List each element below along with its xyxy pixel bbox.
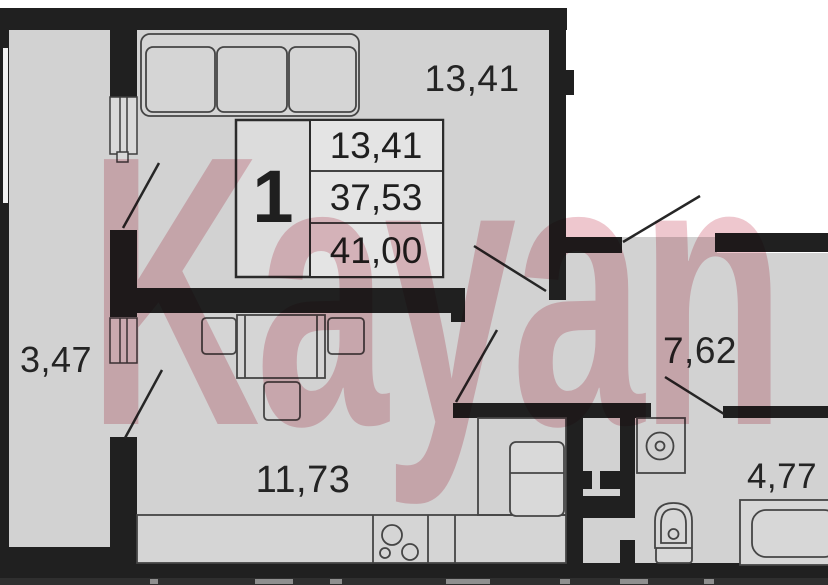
sofa <box>141 34 359 116</box>
strip-dash <box>150 579 158 584</box>
toilet-tank <box>656 547 692 563</box>
strip-dash <box>620 579 648 584</box>
chair-bottom <box>264 382 300 420</box>
dining-table <box>237 315 325 378</box>
wall-balcony-divider-upper <box>110 30 137 97</box>
info-total-area: 41,00 <box>330 230 423 271</box>
rooms-count: 1 <box>252 155 293 238</box>
bottom-crop-strip <box>0 578 828 585</box>
counter-run <box>137 515 566 563</box>
living-room-area-label: 13,41 <box>424 58 519 99</box>
apartment-info-table: 1 13,41 37,53 41,00 <box>236 120 443 277</box>
wall-shaft-stub-left <box>583 471 592 489</box>
strip-dash <box>330 579 342 584</box>
toilet <box>655 503 692 563</box>
sofa-cushion <box>146 47 215 112</box>
strip-dash <box>560 579 570 584</box>
left-wall-window-slit <box>3 48 8 203</box>
kitchen-area-label: 11,73 <box>256 459 351 501</box>
wall-right-nub <box>566 70 574 95</box>
wall-shaft-stub-right <box>600 471 620 489</box>
sofa-cushion <box>289 47 356 112</box>
balcony-window-lower <box>110 318 137 363</box>
wall-bottom <box>0 563 828 578</box>
info-area-no-balcony: 37,53 <box>330 177 423 218</box>
wall-living-right <box>549 12 566 300</box>
floor-plan-svg: 1 13,41 37,53 41,00 13,41 3,47 11,73 7,6… <box>0 0 828 585</box>
wall-top <box>0 8 567 30</box>
bathroom-area-label: 4,77 <box>747 457 817 496</box>
strip-dash <box>704 579 714 584</box>
strip-dash <box>446 579 490 584</box>
wall-bathroom-top-left <box>453 403 651 418</box>
chair-left <box>202 318 236 354</box>
bottom-strip <box>0 578 828 585</box>
floor-entrance-threshold <box>622 237 717 253</box>
sofa-cushion <box>217 47 287 112</box>
wall-bathroom-top-right <box>723 406 828 418</box>
balcony-window-upper <box>110 97 137 154</box>
wall-balcony-divider-lower <box>110 437 137 548</box>
wall-hall-top-left <box>549 237 622 253</box>
wall-living-kitchen-end-nub <box>451 288 465 322</box>
info-living-area: 13,41 <box>330 125 423 166</box>
hallway-area-label: 7,62 <box>663 330 737 371</box>
entrance-door-swing <box>623 196 700 242</box>
wall-living-kitchen <box>110 288 465 313</box>
balcony-area-label: 3,47 <box>20 339 92 380</box>
chair-right <box>328 318 364 354</box>
bathtub <box>740 500 828 565</box>
floor-plan: 1 13,41 37,53 41,00 13,41 3,47 11,73 7,6… <box>0 0 828 585</box>
strip-dash <box>255 579 293 584</box>
balcony-window-upper-sill <box>117 152 128 162</box>
wall-hall-top-right <box>715 233 828 252</box>
wall-shaft-crossbar <box>566 496 635 518</box>
refrigerator <box>510 442 564 516</box>
wall-shaft-left <box>566 418 583 563</box>
wall-shaft-right-lower <box>620 540 635 563</box>
